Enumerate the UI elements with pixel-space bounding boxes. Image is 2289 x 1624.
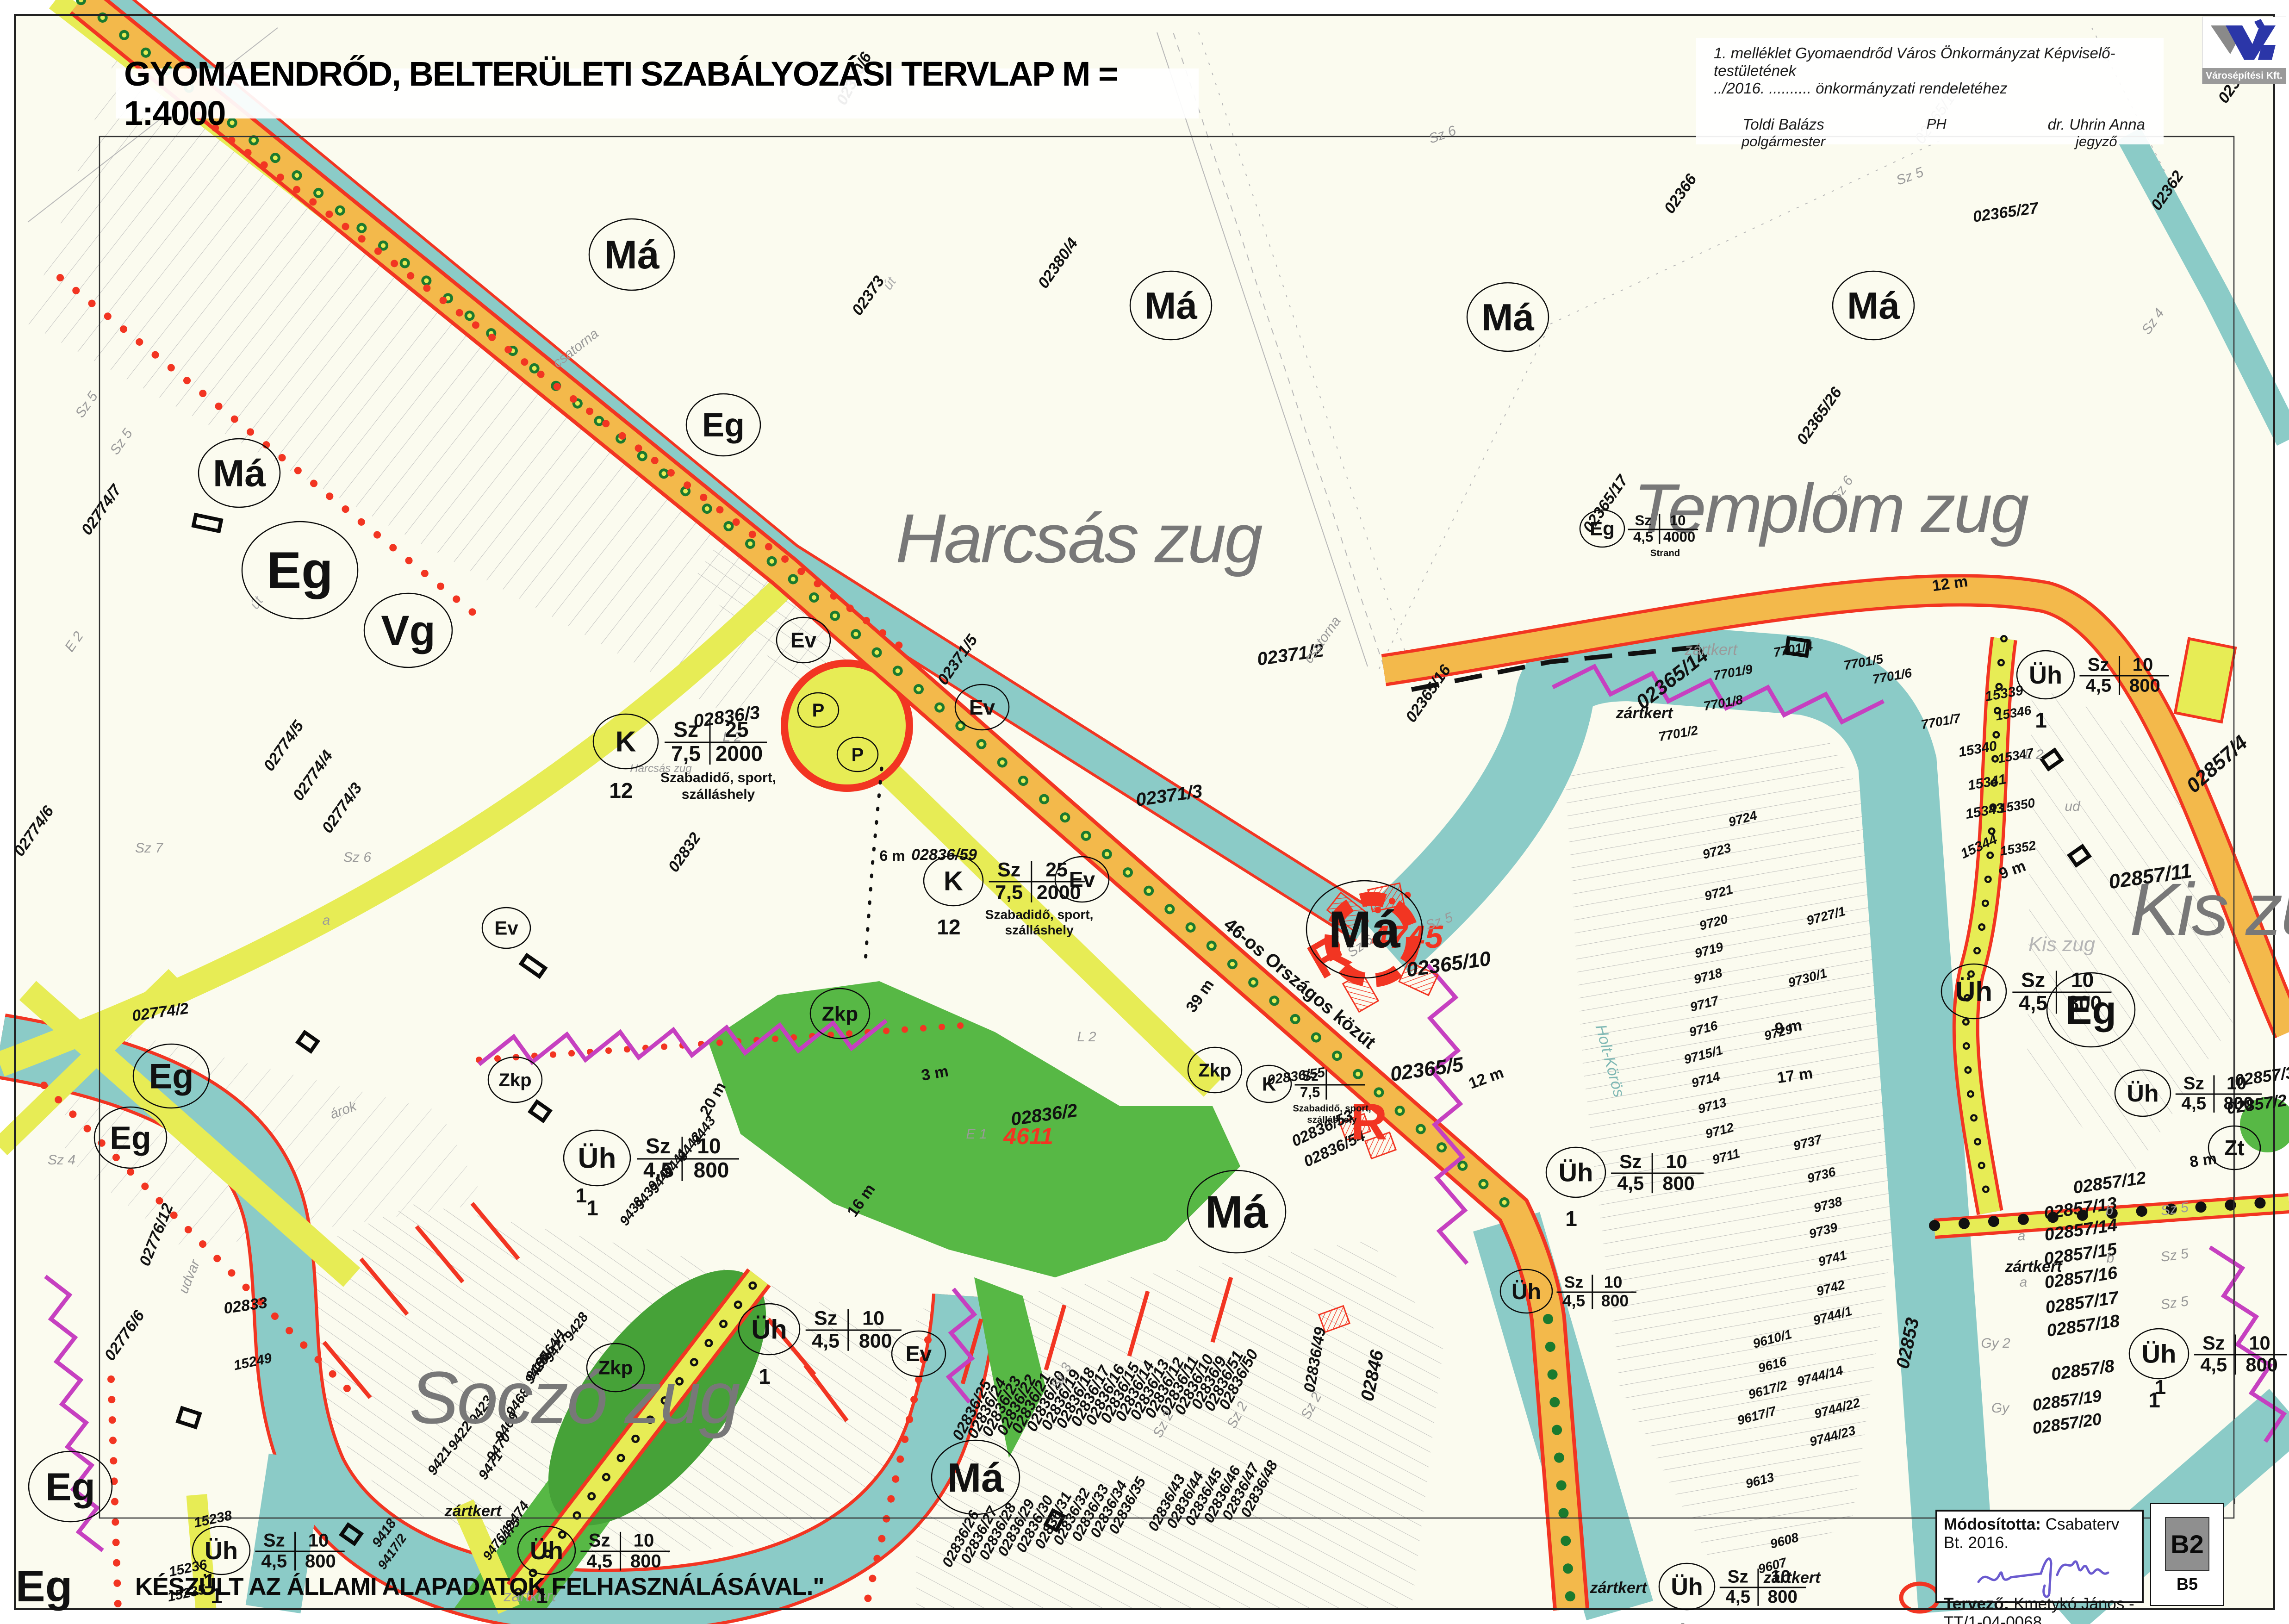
reg-plot-size: 800 [2067,992,2102,1015]
reg-plot-size: 800 [2245,1354,2277,1375]
reg-coverage: 10 [634,1530,654,1550]
reg-height: 4,5 [2019,992,2047,1015]
map-title: GYOMAENDRŐD, BELTERÜLETI SZABÁLYOZÁSI TE… [124,54,1199,133]
zone-code: Eg [45,1465,95,1508]
reg-plot-size: 2000 [715,741,763,765]
parcel-label: 9 m [1774,1016,1803,1038]
attachment-line2: ../2016. .......... önkormányzati rendel… [1714,80,2159,97]
zone-code: K [944,866,963,896]
reg-height: 4,5 [2085,676,2111,696]
parcel-label: zártkert [444,1502,503,1520]
reg-height: 4,5 [1726,1587,1751,1607]
reg-kind: Sz [673,717,698,741]
reg-plot-size: 800 [1662,1172,1694,1194]
logo-mark-icon [2202,17,2286,68]
reg-height: 7,5 [1300,1084,1320,1100]
zone-code: Vg [381,607,435,654]
zone-code: Má [1847,285,1900,327]
zone-code: Eg [1590,518,1615,540]
zone-code: Üh [2029,661,2062,689]
parcel-label: Kis zug [2028,933,2096,956]
zoning-map-canvas: 02380/602380/4023730236602365/2702365/19… [0,0,2289,1624]
parcel-label: L 2 [1077,1029,1096,1045]
reg-height: 4,5 [586,1551,612,1572]
zone-code: Zt [2224,1136,2244,1160]
designer-label: Tervező: [1944,1595,2009,1613]
place-name: Harcsás zug [896,499,1263,577]
reg-kind: Sz [997,859,1020,881]
parcel-label: 4611 [1003,1123,1053,1149]
zone-code: Üh [1559,1158,1593,1187]
attachment-note: 1. melléklet Gyomaendrőd Város Önkormány… [1696,38,2164,144]
zone-code: Zkp [598,1357,633,1379]
reg-index: 1 [2148,1388,2160,1412]
designer-signature [1972,1549,2124,1599]
reg-plot-size: 800 [859,1330,892,1352]
parcel-label: Eg [16,1562,73,1611]
reg-plot-size: 800 [694,1158,729,1182]
seal-placeholder: PH [1927,116,1947,150]
reg-coverage: 25 [1045,859,1068,881]
footer-disclaimer: KÉSZÜLT AZ ÁLLAMI ALAPADATOK FELHASZNÁLÁ… [135,1573,824,1601]
reg-coverage: 10 [862,1307,884,1330]
reg-height: 4,5 [643,1158,673,1182]
reg-plot-size: 800 [630,1551,661,1572]
reg-kind: Sz [589,1530,610,1550]
reg-note: Strand [1650,548,1680,559]
zone-code: Eg [149,1057,193,1096]
reg-plot-size: 2000 [1037,881,1081,903]
zone-code: Ev [906,1342,932,1366]
parcel-label: a [2018,1228,2026,1244]
zone-code: Má [1144,285,1197,327]
zone-code: Üh [205,1537,238,1565]
parcel-label: a [323,913,330,928]
reg-coverage: 25 [725,717,748,741]
zone-code: Eg [702,407,745,444]
reg-kind: Sz [2183,1074,2204,1094]
zone-code: Má [1328,901,1400,958]
parcel-label: Sz 4 [48,1152,75,1168]
reg-height: 4,5 [1633,529,1653,545]
reg-note: Szabadidő, sport, [660,770,776,785]
reg-kind: Sz [2021,969,2045,991]
parcel-label: b [2106,1203,2114,1218]
logo-company-name: Városépítési Kft. [2202,68,2286,84]
zone-code: Má [947,1455,1004,1500]
zone-code: Ev [494,917,518,939]
reg-index: 1 [586,1196,598,1220]
zone-code: P [812,700,825,721]
parcel-label: E 1 [966,1126,987,1142]
sheet-code-badge: B2 [2165,1517,2209,1571]
place-name: Kis zug [2130,868,2289,951]
zone-code: Üh [1955,976,1992,1007]
zone-code: Eg [267,541,333,599]
parcel-label: 02836/59 [911,846,977,864]
reg-note: Szabadidő, sport, [1293,1104,1371,1114]
zone-code: Má [1481,297,1534,339]
reg-height: 4,5 [1617,1172,1644,1194]
parcel-label: Gy 2 [1981,1336,2010,1351]
reg-index: 1 [2035,708,2047,732]
reg-note: Szabadidő, sport, [985,907,1094,921]
place-name: Soczó zug [409,1356,740,1439]
zone-code: K [616,726,636,758]
zone-code: Má [604,233,660,277]
reg-coverage: 10 [2227,1074,2246,1094]
parcel-label: Gy [1991,1400,2010,1416]
reg-kind: Sz [1564,1273,1584,1291]
zone-code: P [852,745,864,765]
map-sheet: 02380/602380/4023730236602365/2702365/19… [0,0,2289,1624]
reg-height: 7,5 [995,881,1023,903]
reg-index: 1 [1676,1619,1688,1624]
zone-code: Üh [530,1537,563,1565]
reg-kind: Sz [1301,1068,1318,1084]
reg-coverage: 10 [1666,1151,1687,1172]
zone-code: Üh [1671,1574,1703,1600]
zone-code: Má [1205,1186,1269,1237]
sheet-index-panel: B2 B5 [2150,1503,2224,1606]
reg-height: 4,5 [2182,1094,2207,1114]
reg-kind: Sz [1635,512,1651,529]
parcel-label: Sz 6 [343,850,371,865]
zone-code: Üh [751,1314,787,1344]
reg-kind: Sz [646,1134,671,1158]
notary-signature: dr. Uhrin Anna jegyző [2048,116,2145,150]
zone-code: Ev [790,628,817,652]
zone-code: Üh [1511,1280,1541,1304]
sheet-code-sub: B5 [2177,1574,2198,1594]
zone-code: Zkp [498,1070,531,1090]
reg-kind: Sz [2202,1332,2225,1354]
attachment-line1: 1. melléklet Gyomaendrőd Város Önkormány… [1714,44,2159,80]
reg-index: 1 [759,1364,771,1388]
reg-coverage: 10 [697,1134,721,1158]
reg-coverage: 10 [1771,1567,1791,1587]
zone-code: Üh [2142,1339,2177,1369]
reg-plot-size: 800 [1601,1292,1629,1310]
reg-height: 7,5 [671,741,701,765]
zone-code: K [1262,1073,1276,1095]
parcel-label: zártkert [2005,1258,2063,1276]
reg-kind: Sz [1728,1567,1748,1587]
reg-index: 12 [609,778,633,803]
parcel-label: Sz 7 [135,840,163,856]
reg-coverage: 10 [2133,654,2153,675]
zone-code: Eg [110,1120,151,1156]
reg-height: 4,5 [812,1330,840,1352]
reg-coverage: 10 [2071,969,2094,991]
zone-code: Má [213,453,266,495]
parcel-label: zártkert [1684,641,1738,659]
mayor-signature: Toldi Balázs polgármester [1742,116,1825,150]
map-title-band: GYOMAENDRŐD, BELTERÜLETI SZABÁLYOZÁSI TE… [116,68,1199,118]
parcel-label: L 2 [2024,747,2043,762]
parcel-label: zártkert [1590,1579,1648,1597]
reg-coverage: 10 [2249,1332,2270,1354]
parcel-label: b [2107,1251,2115,1266]
reg-note: szálláshely [682,787,755,802]
zone-code: Üh [578,1143,616,1175]
reg-index: 12 [937,915,960,939]
reg-plot-size: 800 [1768,1587,1798,1607]
zone-code: Zkp [1198,1060,1231,1081]
title-block: Módosította: Csabaterv Bt. 2016. Tervező… [1935,1510,2144,1603]
reg-coverage: 10 [1670,512,1686,529]
modified-label: Módosította: [1944,1515,2041,1533]
parcel-label: 1 [576,1184,587,1207]
reg-coverage: 10 [308,1530,329,1550]
reg-plot-size: 800 [2129,676,2160,696]
parcel-label: a [2020,1275,2028,1290]
reg-note: szálláshely [1005,923,1074,937]
parcel-label: ud [2065,799,2081,814]
company-logo: Városépítési Kft. [2202,17,2286,84]
reg-kind: Sz [2088,654,2109,675]
parcel-label: 6 m [879,847,905,864]
reg-index: 1 [1565,1207,1577,1231]
reg-note: szálláshely [1307,1115,1357,1125]
zone-code: Üh [2127,1080,2158,1107]
reg-height: 4,5 [261,1551,287,1572]
reg-height: 4,5 [2200,1354,2227,1375]
reg-kind: Sz [263,1530,285,1550]
parcel-label: zártkert [1616,704,1674,722]
reg-height: 4,5 [1562,1292,1586,1310]
reg-plot-size: 800 [2224,1094,2253,1114]
reg-plot-size: 800 [305,1551,336,1572]
zone-code: Ev [969,695,995,719]
zone-code: Zkp [822,1002,858,1025]
reg-kind: Sz [814,1307,837,1330]
reg-kind: Sz [1619,1151,1642,1172]
reg-plot-size: 4000 [1663,529,1695,545]
reg-coverage: 10 [1604,1273,1623,1291]
